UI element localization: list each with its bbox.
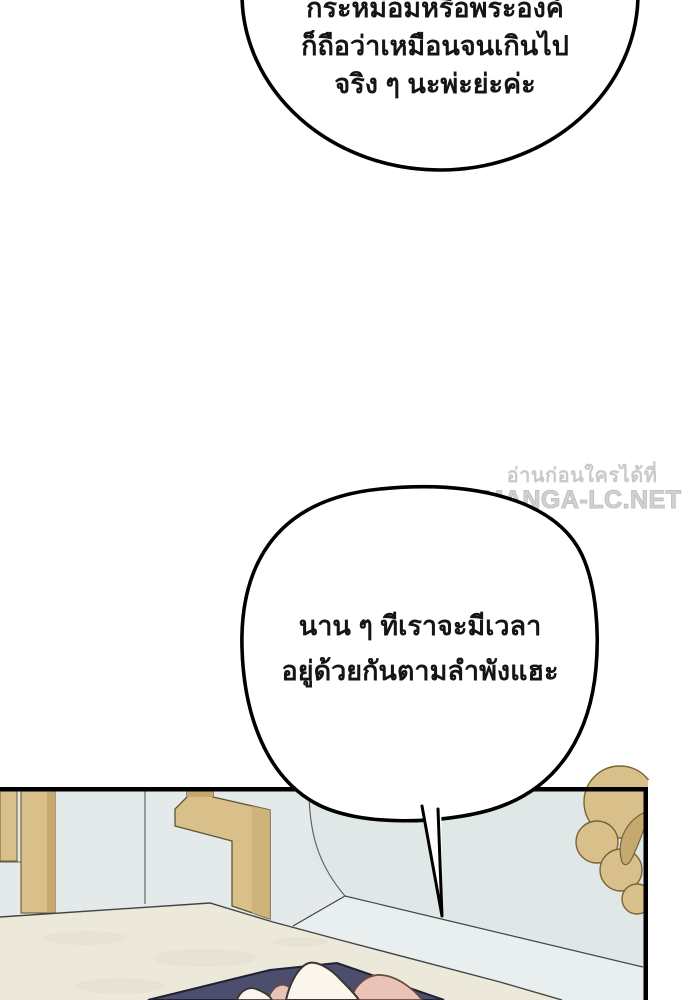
bubble-top-text: กระหม่อมหรือพระองค์ ก็ถือว่าเหมือนจนเกิน…: [230, 0, 640, 103]
bubble-middle-line-1: นาน ๆ ทีเราจะมีเวลา: [299, 604, 542, 649]
bubble-top-line-2: ก็ถือว่าเหมือนจนเกินไป: [301, 27, 569, 65]
bubble-top-line-1: กระหม่อมหรือพระองค์: [306, 0, 564, 27]
bubble-middle-line-2: อยู่ด้วยกันตามลำพังแฮะ: [282, 649, 559, 694]
bubble-top-line-3: จริง ๆ นะพ่ะย่ะค่ะ: [334, 65, 535, 103]
speech-bubbles-layer: [0, 0, 700, 1000]
bubble-middle-text: นาน ๆ ทีเราจะมีเวลา อยู่ด้วยกันตามลำพังแ…: [235, 604, 605, 694]
comic-page: อ่านก่อนใครได้ที่ MANGA-LC.NET กระหม่อมห…: [0, 0, 700, 1000]
bubble-tail: [419, 797, 443, 917]
